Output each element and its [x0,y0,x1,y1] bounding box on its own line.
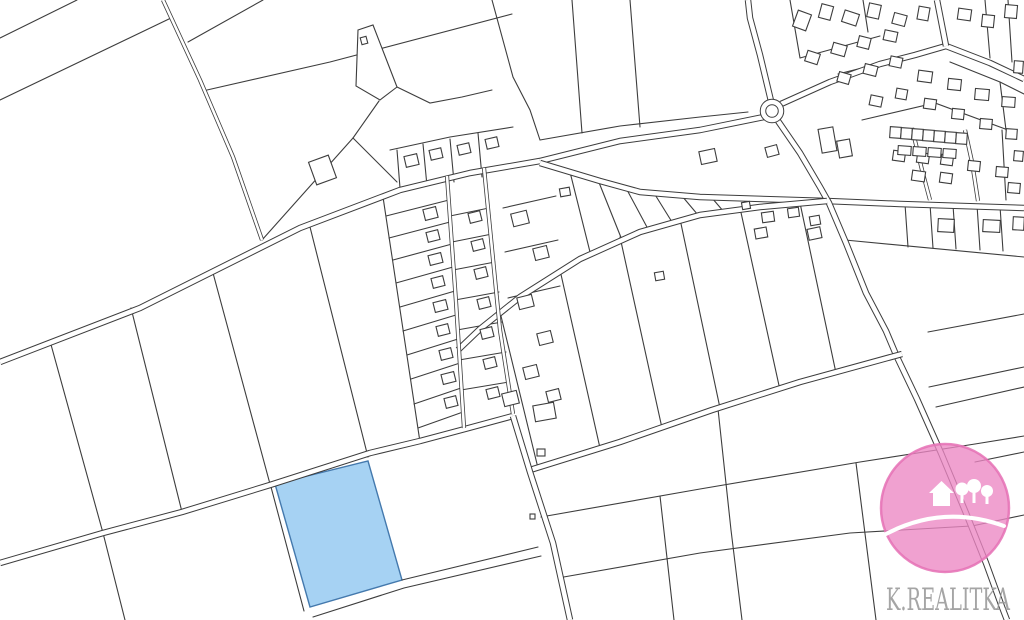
parcel-boundary [131,308,182,512]
building-footprint [939,172,952,184]
building-footprint [934,131,946,143]
building-footprint [537,330,553,345]
building-footprint [917,70,932,83]
parcel-boundary [459,352,506,360]
building-footprint [431,276,445,289]
building-footprint [912,129,924,141]
building-footprint [981,14,994,27]
tree-icon [967,479,981,493]
parcel-boundary [560,270,600,448]
building-footprint [480,327,494,340]
parcel-boundary [620,237,662,428]
building-footprint [754,227,768,239]
building-footprint [1004,5,1017,19]
building-footprint [807,227,822,240]
pentagon-parcel [356,25,397,100]
building-footprint [956,133,968,145]
building-footprint [546,389,561,403]
parcel-boundary [1002,130,1006,200]
watermark-text: K.REALITKA [886,582,1010,618]
building-footprint [1014,61,1024,74]
parcel-boundary [845,240,1024,257]
building-footprint [895,88,908,100]
parcel-boundary [492,0,540,140]
building-footprint [805,50,821,64]
building-footprint [892,13,907,27]
building-footprint [533,245,549,260]
building-footprint [945,132,957,144]
building-footprint [471,239,485,252]
tree-trunk-icon [973,492,976,503]
building-footprint [533,402,556,421]
building-footprint [952,108,965,119]
building-footprint [530,514,535,519]
parcel-boundary [383,197,420,442]
building-footprint [968,160,981,171]
building-footprint [889,56,903,68]
building-footprint [837,139,853,158]
building-footprint [1008,182,1021,193]
parcel-boundary [402,547,538,580]
building-footprint [957,8,971,21]
building-footprint [913,147,927,157]
building-footprint [486,387,500,400]
building-footprint [511,210,530,226]
building-footprint [654,271,664,280]
parcel-boundary [630,0,640,127]
parcel-boundary [985,0,990,58]
building-footprint [426,230,440,243]
building-footprint [983,220,1001,233]
parcel-boundary [856,463,876,620]
building-footprint [1006,129,1018,140]
building-footprint [857,36,871,50]
building-footprint [428,253,443,266]
building-footprint [818,127,837,153]
parcel-boundary [0,18,171,100]
parcel-boundary [975,436,1024,444]
parcel-boundary [790,0,800,58]
parcel-boundary [936,387,1024,407]
building-footprint [793,10,812,31]
parcel-boundary [393,244,452,260]
parcel-boundary [905,204,908,247]
building-footprint [444,396,458,409]
tree-icon [981,485,993,497]
building-footprint [867,3,882,19]
building-footprint [404,154,419,168]
building-footprint [765,145,779,158]
building-footprint [923,130,935,142]
tree-trunk-icon [986,496,989,504]
building-footprint [809,215,820,226]
building-footprint [996,166,1009,177]
building-footprint [883,30,898,42]
parcel-boundary [680,219,720,408]
logo-circle [881,444,1009,572]
building-footprint [911,170,925,182]
building-footprint [699,148,717,164]
parcel-boundary [977,205,980,250]
parcel-boundary [570,172,590,252]
building-footprint [502,390,520,406]
building-footprint [890,127,902,139]
building-footprint [943,149,957,159]
parcel-boundary [1000,206,1003,251]
parcel-boundary [572,0,582,133]
tree-icon [956,483,969,496]
building-footprint [474,267,488,280]
building-footprint [537,449,545,456]
parcel-boundary [929,367,1024,387]
building-footprint [923,98,936,110]
parcel-boundary [455,292,499,300]
building-footprint [423,207,438,221]
parcel-boundary [505,240,558,252]
parcel-boundary [718,409,742,620]
highlighted-parcel[interactable] [275,461,402,607]
parcel-boundary [310,227,368,457]
parcel-boundary [386,200,449,216]
building-footprint [761,211,774,223]
building-footprint [831,42,847,56]
lane-topleft [163,0,262,240]
building-footprint [818,4,833,21]
parcel-boundary [928,314,1024,332]
building-footprint [441,372,456,385]
parcel-boundary [50,341,125,620]
building-footprint [901,128,913,140]
building-footprint [928,148,942,158]
building-footprint [439,348,453,361]
building-footprint [559,187,570,197]
parcel-boundary [353,138,397,182]
building-footprint [429,148,443,160]
building-footprint [947,78,961,90]
building-footprint [869,95,883,107]
parcel-boundary [461,382,509,390]
building-footprint [1013,217,1024,231]
building-footprint [917,6,930,21]
parcel-boundary [453,262,495,270]
building-footprint [477,297,491,310]
building-footprint [433,300,448,313]
parcel-boundary [188,0,263,42]
building-footprint [523,364,539,379]
building-footprint [975,88,990,100]
parcel-boundary [397,87,492,103]
parcel-boundary [930,204,933,248]
building-footprint [436,324,450,337]
parcel-boundary [0,0,77,38]
building-footprint [1002,97,1016,108]
building-footprint [309,155,337,185]
parcel-boundary [389,222,450,238]
map-canvas[interactable]: K.REALITKA [0,0,1024,620]
building-footprint [842,10,860,26]
building-footprint [1014,151,1024,162]
building-footprint [457,143,471,155]
building-footprint [938,219,955,233]
cadastral-map-view: K.REALITKA [0,0,1024,620]
parcel-boundary [423,144,427,186]
building-footprint [787,207,799,217]
building-footprint [741,201,750,209]
parcel-boundary [353,101,379,138]
parcel-boundary [213,273,270,484]
building-footprint [483,357,497,370]
building-footprint [898,146,912,156]
parcel-boundary [396,267,453,283]
building-footprint [980,118,993,129]
parcel-boundary [503,196,556,208]
house-icon [933,492,950,506]
building-footprint [468,211,482,224]
building-footprint [485,137,499,149]
parcel-boundary [418,412,463,428]
building-footprint [360,36,368,44]
krealitka-logo [881,444,1009,572]
